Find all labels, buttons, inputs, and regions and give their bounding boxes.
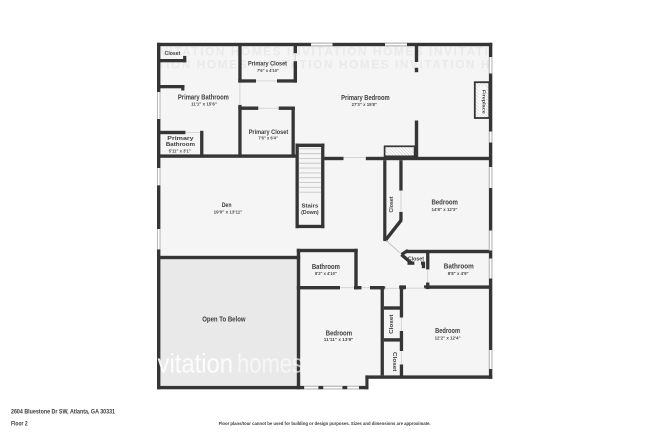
svg-text:Bathroom: Bathroom — [444, 264, 474, 271]
svg-text:Fireplace: Fireplace — [480, 90, 486, 114]
svg-text:11'1" x 15'6": 11'1" x 15'6" — [191, 102, 217, 107]
svg-text:12'2" x 12'4": 12'2" x 12'4" — [435, 335, 461, 340]
svg-text:Den: Den — [222, 202, 232, 209]
svg-text:8'2" x 4'10": 8'2" x 4'10" — [315, 271, 337, 276]
svg-text:Primary Bathroom: Primary Bathroom — [178, 93, 229, 102]
svg-text:7'6" x 6'4": 7'6" x 6'4" — [258, 136, 277, 141]
svg-text:(Down): (Down) — [301, 210, 319, 216]
svg-text:NVITATION HOMES INVITATION HOM: NVITATION HOMES INVITATION HOMES INVITAT… — [150, 45, 500, 59]
svg-text:Closet: Closet — [389, 314, 395, 334]
svg-text:Closet: Closet — [391, 352, 397, 372]
svg-text:2604 Bluestone Dr SW, Atlanta,: 2604 Bluestone Dr SW, Atlanta, GA 30331 — [11, 409, 115, 416]
svg-text:Bathroom: Bathroom — [166, 142, 195, 148]
svg-text:27'3" x 15'8": 27'3" x 15'8" — [352, 102, 377, 107]
svg-text:8'8" x 4'9": 8'8" x 4'9" — [448, 271, 469, 276]
svg-text:Primary Closet: Primary Closet — [248, 61, 288, 68]
svg-text:Primary Bedroom: Primary Bedroom — [341, 93, 390, 102]
svg-text:Floor plans/tour cannot be use: Floor plans/tour cannot be used for buil… — [219, 421, 431, 426]
svg-text:Open To Below: Open To Below — [202, 316, 246, 323]
svg-text:Stairs: Stairs — [302, 203, 319, 209]
svg-text:Closet: Closet — [389, 196, 395, 212]
svg-text:19'0" x 13'11": 19'0" x 13'11" — [214, 210, 243, 215]
svg-text:Bedroom: Bedroom — [435, 326, 460, 335]
svg-text:Floor 2: Floor 2 — [11, 420, 28, 427]
svg-text:5'11" x 3'1": 5'11" x 3'1" — [169, 149, 191, 154]
svg-text:7'6" x 4'10": 7'6" x 4'10" — [257, 68, 279, 73]
svg-text:Bedroom: Bedroom — [431, 198, 458, 207]
svg-text:14'8" x 12'3": 14'8" x 12'3" — [432, 207, 458, 212]
svg-text:Closet: Closet — [165, 51, 181, 57]
svg-text:Closet: Closet — [408, 256, 424, 262]
svg-text:11'11" x 13'9": 11'11" x 13'9" — [324, 337, 354, 342]
svg-text:invitationhomes: invitationhomes — [139, 348, 303, 378]
svg-text:ATION HOMES INVITATION HOMES I: ATION HOMES INVITATION HOMES INVITATION … — [148, 58, 502, 72]
